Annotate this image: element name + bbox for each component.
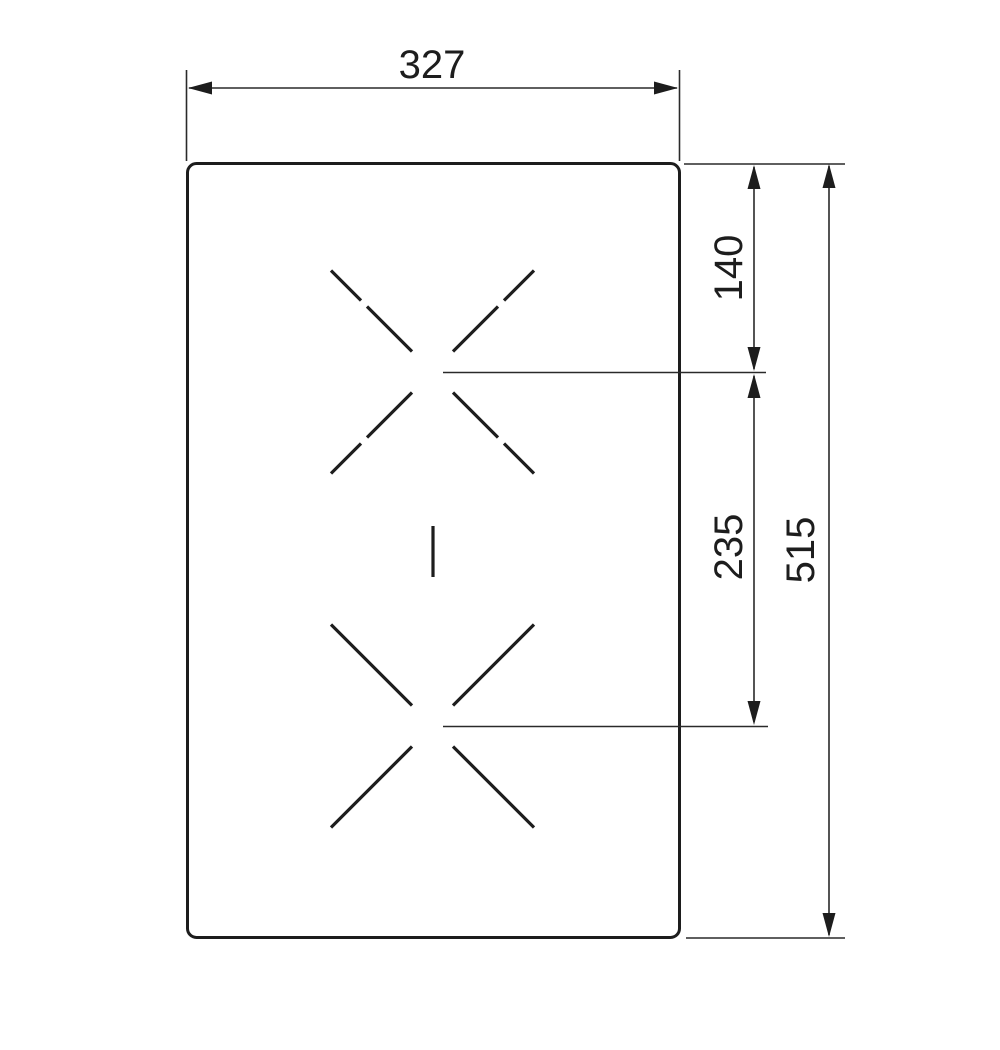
arrowhead-up-icon bbox=[748, 374, 761, 398]
dimension-label-zone-offset: 140 bbox=[707, 235, 751, 302]
dimension-label-height: 515 bbox=[779, 517, 823, 584]
arrowhead-left-icon bbox=[188, 82, 212, 95]
dimension-height: 515 bbox=[779, 164, 836, 937]
arrowhead-right-icon bbox=[654, 82, 678, 95]
arrowhead-down-icon bbox=[823, 913, 836, 937]
dimension-drawing-canvas: 327 140 235 515 bbox=[0, 0, 1000, 1050]
dimension-zone-offset: 140 bbox=[707, 165, 761, 371]
dimension-zone-spacing: 235 bbox=[707, 374, 761, 725]
dimension-width: 327 bbox=[187, 43, 680, 161]
arrowhead-down-icon bbox=[748, 701, 761, 725]
dimension-label-width: 327 bbox=[399, 43, 466, 87]
technical-drawing: 327 140 235 515 bbox=[0, 0, 1000, 1050]
arrowhead-down-icon bbox=[748, 347, 761, 371]
arrowhead-up-icon bbox=[823, 164, 836, 188]
arrowhead-up-icon bbox=[748, 165, 761, 189]
dimension-label-zone-spacing: 235 bbox=[707, 514, 751, 581]
